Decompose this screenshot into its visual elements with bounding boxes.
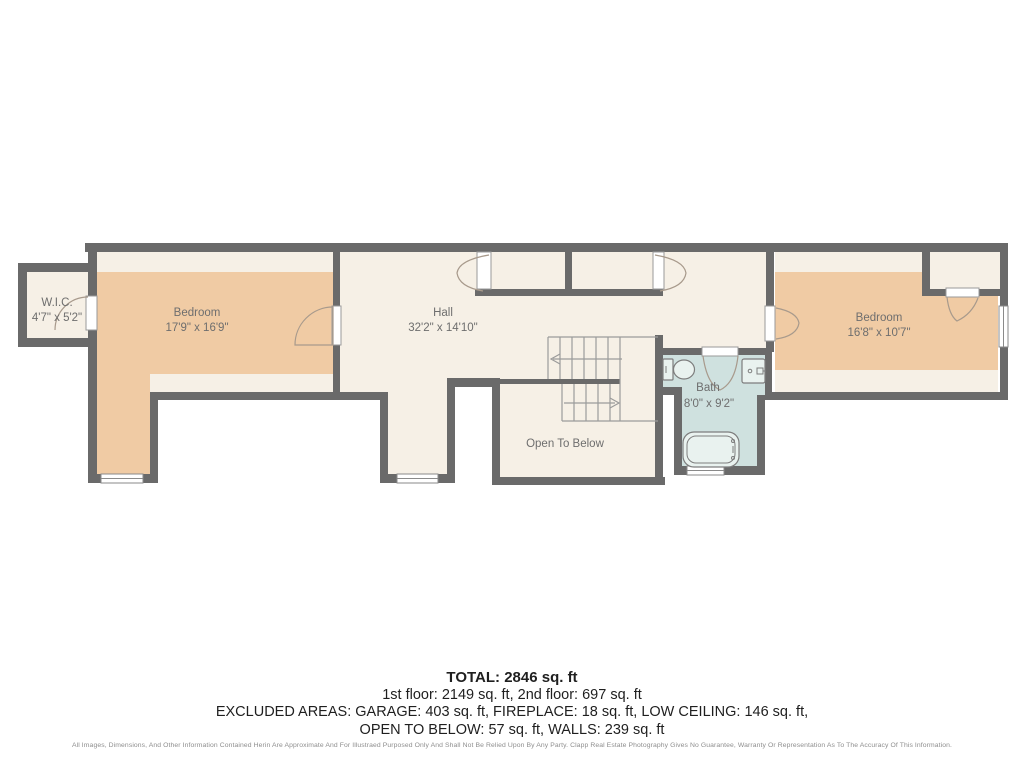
wall-hall-leg-right	[447, 378, 455, 474]
summary-floors: 1st floor: 2149 sq. ft, 2nd floor: 697 s…	[0, 687, 1024, 705]
area-summary: TOTAL: 2846 sq. ft 1st floor: 2149 sq. f…	[0, 669, 1024, 739]
wall-hall-south	[447, 378, 500, 387]
wall-open-below-left	[492, 387, 500, 485]
wall-open-below-bottom	[492, 477, 665, 485]
wall-bedroom-bottom	[150, 392, 388, 400]
floorplan-page: W.I.C. 4'7" x 5'2" Bedroom 17'9" x 16'9"…	[0, 0, 1024, 768]
door-bedroom-right-opening	[765, 306, 775, 341]
wall-bath-lower-right	[757, 395, 765, 467]
label-bedroom-right-dims: 16'8" x 10'7"	[847, 327, 910, 339]
label-bedroom-left-dims: 17'9" x 16'9"	[165, 322, 228, 334]
door-closet-2-leaf	[653, 252, 664, 289]
door-closet-right-opening	[946, 288, 979, 297]
door-bath-opening	[702, 347, 738, 356]
room-hall-leg-floor	[388, 378, 447, 474]
label-bedroom-right: Bedroom	[856, 312, 903, 324]
summary-total: TOTAL: 2846 sq. ft	[0, 669, 1024, 687]
wall-closet-divider	[565, 252, 572, 296]
disclaimer-text: All Images, Dimensions, And Other Inform…	[0, 742, 1024, 749]
room-vestibule-floor	[655, 252, 768, 348]
label-hall-dims: 32'2" x 14'10"	[408, 322, 477, 334]
label-bath-dims: 8'0" x 9'2"	[684, 398, 734, 410]
window-bedroom-right	[999, 306, 1008, 347]
label-bath: Bath	[696, 382, 720, 394]
wall-left-outer	[88, 243, 97, 483]
wall-bedroom-leg-right	[150, 400, 158, 483]
wall-wic-left	[18, 263, 27, 347]
bathtub-fixture	[683, 432, 739, 467]
label-bedroom-left: Bedroom	[174, 307, 221, 319]
label-hall: Hall	[433, 307, 453, 319]
wall-bath-step	[655, 387, 682, 395]
summary-excluded-line1: EXCLUDED AREAS: GARAGE: 403 sq. ft, FIRE…	[0, 704, 1024, 722]
wall-open-below-right	[655, 335, 663, 477]
wall-wic-top	[18, 263, 97, 272]
wall-wic-bottom	[18, 338, 97, 347]
summary-excluded-line2: OPEN TO BELOW: 57 sq. ft, WALLS: 239 sq.…	[0, 722, 1024, 740]
window-bedroom-left	[101, 474, 143, 483]
room-bedroom-left-carpet	[97, 272, 333, 474]
label-open-to-below: Open To Below	[526, 438, 604, 450]
window-hall-leg	[397, 474, 438, 483]
wall-hall-leg-left	[380, 400, 388, 474]
wall-top	[85, 243, 1008, 252]
sink-fixture	[742, 359, 766, 383]
stair-divider-rail	[500, 379, 620, 384]
room-hall-floor-left	[340, 252, 388, 392]
label-wic-dims: 4'7" x 5'2"	[32, 312, 82, 324]
room-closet-right-floor	[930, 252, 1000, 289]
toilet-fixture	[663, 359, 695, 380]
floor-fills	[27, 252, 1000, 478]
door-wic-opening	[86, 296, 97, 330]
floorplan-drawing: W.I.C. 4'7" x 5'2" Bedroom 17'9" x 16'9"…	[0, 0, 1024, 660]
wall-bath-lower-left	[674, 395, 682, 467]
wall-bedroom-right-bottom	[765, 392, 1008, 400]
label-wic: W.I.C.	[41, 297, 72, 309]
